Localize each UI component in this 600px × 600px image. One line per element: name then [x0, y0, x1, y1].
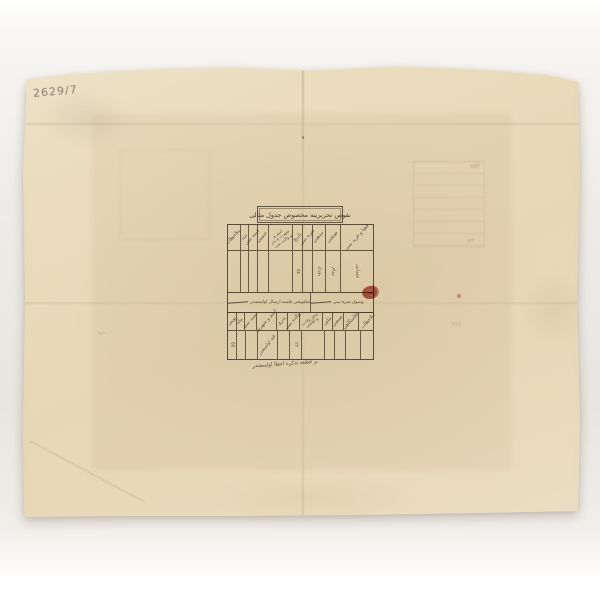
upper-header-cell: اسم و شهرت و پدر و والده سى: [269, 225, 293, 250]
upper-header-cell: نمره سى: [303, 225, 313, 250]
table-cell: [335, 331, 346, 359]
red-speck: [457, 294, 461, 298]
column-header: اسم و شهرت و پدر و والده سى: [267, 225, 293, 249]
lower-table: يومى ماه سنه سى اسم و شهرتى پدرى والده س…: [227, 312, 374, 360]
table-cell: قيد اولنمشدر: [258, 331, 278, 359]
table-cell: [325, 331, 335, 359]
cell-entry: عثمانى: [355, 264, 360, 278]
table-cell: [249, 251, 258, 292]
lower-header-cell: والده سى: [288, 313, 300, 330]
table-cell: [361, 331, 373, 359]
lower-header-cell: ملاحظات: [359, 313, 378, 330]
faint-pencil-note-left: مىد: [97, 329, 106, 336]
lower-header-row: يومى ماه سنه سى اسم و شهرتى پدرى والده س…: [228, 313, 373, 331]
table-cell: [241, 251, 249, 292]
ghost-script-mark: ٤٥٣: [470, 163, 480, 170]
table-cell: ٥٥: [228, 331, 237, 359]
table-cell: [269, 251, 293, 292]
table-cell: تمام: [326, 251, 341, 292]
upper-header-cell: قضا و قريه سى: [341, 225, 374, 250]
upper-body-row: ٥٤ بغداد تمام عثمانى: [228, 251, 373, 292]
photo-backdrop: ٤٥٣ حم 2629/7 مىد ٣٥٤ نفوس تحريرينه مخصو…: [0, 0, 600, 600]
cell-entry: قيد اولنمشدر: [258, 334, 277, 356]
ghost-script-mark: حم: [467, 235, 476, 243]
table-title: نفوس تحريرينه مخصوص جدول مثالى: [249, 211, 351, 219]
lower-header-cell: محل ولادت و اقامتى: [300, 313, 323, 330]
lower-header-cell: اقامتگاهى: [344, 313, 359, 330]
cell-entry: تمام: [331, 267, 336, 276]
lower-body-row: ٥٥ قيد اولنمشدر ٢٢: [228, 331, 373, 359]
column-header: ملاحظات: [360, 313, 377, 331]
column-header: مذهبى: [312, 231, 325, 245]
table-cell: ٥٤: [293, 251, 303, 292]
lower-header-cell: اسم و شهرتى: [257, 313, 277, 330]
table-cell: ٢٢: [290, 331, 302, 359]
cell-entry: ٢٢: [293, 342, 298, 347]
column-header: محل ولادت و اقامتى: [300, 311, 323, 331]
ink-dash: [311, 301, 331, 303]
band-right-text: وصول نمره سى: [333, 300, 364, 305]
band-left-cell: مكتوبجى قلمنه ارسال اولنمشدر: [228, 292, 311, 312]
cell-entry: ٥٥: [230, 342, 235, 347]
table-cell: [278, 331, 290, 359]
stain-bottom: [200, 476, 420, 520]
table-cell: بغداد: [313, 251, 326, 292]
cell-entry: بغداد: [317, 266, 322, 276]
upper-header-cell: صنعتى: [326, 225, 341, 250]
stain-right-edge: [520, 268, 590, 352]
band-left-text: مكتوبجى قلمنه ارسال اولنمشدر: [250, 300, 310, 305]
table-cell: [303, 251, 313, 292]
ink-speck: [302, 136, 304, 139]
seal-text: وصل: [366, 289, 375, 295]
table-cell: [246, 331, 258, 359]
table-cell: [302, 331, 325, 359]
upper-header-cell: مذهبى: [313, 225, 326, 250]
ghost-table-right: ٤٥٣ حم: [413, 161, 485, 247]
ghost-frame-left: [120, 150, 210, 240]
faint-pencil-note-right: ٣٥٤: [452, 321, 462, 329]
column-header: اقامتگاهى: [342, 312, 360, 331]
ink-dash: [228, 301, 248, 303]
upper-header-row: ملاحظات عدد قيمه سى جنسى اسم و شهرت و پد…: [228, 225, 373, 251]
upper-table: ملاحظات عدد قيمه سى جنسى اسم و شهرت و پد…: [227, 224, 374, 293]
document-sheet: ٤٥٣ حم 2629/7 مىد ٣٥٤ نفوس تحريرينه مخصو…: [0, 0, 600, 600]
cell-entry: ٥٤: [295, 269, 300, 274]
document-sheet-wrap: ٤٥٣ حم 2629/7 مىد ٣٥٤ نفوس تحريرينه مخصو…: [0, 0, 600, 600]
table-cell: [237, 331, 246, 359]
table-cell: [258, 251, 269, 292]
column-header: قضا و قريه سى: [344, 223, 370, 251]
middle-annotation-band: مكتوبجى قلمنه ارسال اولنمشدر وصول نمره س…: [227, 292, 374, 313]
column-header: صنعتى: [326, 231, 339, 245]
table-cell: [346, 331, 361, 359]
band-right-cell: وصول نمره سى وصل: [311, 292, 384, 312]
table-title-box: نفوس تحريرينه مخصوص جدول مثالى: [257, 206, 343, 223]
table-cell: [228, 251, 241, 292]
